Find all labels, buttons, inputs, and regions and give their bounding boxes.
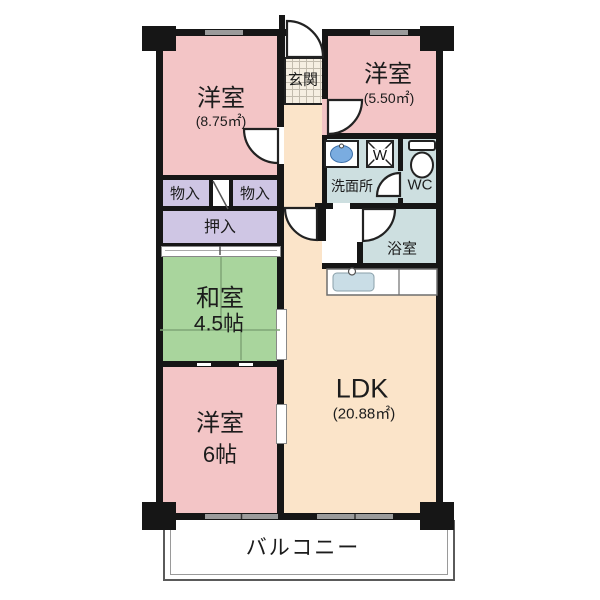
- japanese-room-area: 4.5帖: [194, 314, 244, 335]
- bedroom-sw-label: 洋室: [196, 412, 244, 436]
- entrance-door-arc: [287, 21, 323, 57]
- pillar-top-right: [420, 26, 454, 51]
- pillar-top-left: [142, 26, 176, 51]
- door-arcs: [244, 21, 400, 241]
- ldk-label: LDK: [336, 376, 389, 403]
- bedroom-ne-label: 洋室: [364, 63, 412, 87]
- pillar-bottom-right: [420, 502, 454, 530]
- bedroom-nw-area: (8.75㎡): [196, 114, 247, 128]
- ldk-area: (20.88㎡): [333, 407, 396, 422]
- storage-right-label: 物入: [240, 187, 270, 202]
- storage-gap-diagonal: [213, 181, 228, 209]
- bedroom-nw-door-arc: [244, 129, 278, 163]
- washer-icon: W: [367, 141, 393, 167]
- kitchen-sink: [333, 273, 374, 291]
- bathroom-door-arc: [363, 209, 395, 241]
- entrance-label: 玄関: [288, 73, 318, 88]
- bedroom-nw-label: 洋室: [197, 87, 245, 111]
- bedroom-ne-door-arc: [328, 100, 362, 134]
- washroom-label: 洗面所: [331, 179, 373, 193]
- closet-label: 押入: [204, 220, 236, 236]
- kitchen-faucet: [349, 268, 356, 275]
- bathroom-label: 浴室: [387, 242, 417, 257]
- wc-label: WC: [408, 178, 433, 193]
- hall-door-arc: [285, 208, 317, 240]
- bedroom-sw-area: 6帖: [203, 444, 237, 466]
- wc-door-arc: [377, 173, 400, 196]
- floorplan: W 洋室 (8.75㎡) 洋室 (5.50㎡) 玄関 洗面所 WC 浴室 物入 …: [0, 0, 600, 600]
- bedroom-ne-area: (5.50㎡): [364, 91, 415, 105]
- sink-icon: [325, 141, 358, 167]
- japanese-room-label: 和室: [196, 287, 244, 311]
- kitchen-counter: [327, 268, 437, 295]
- toilet-icon: [409, 141, 435, 178]
- storage-left-label: 物入: [170, 187, 200, 202]
- washer-label: W: [373, 147, 388, 164]
- plan-details: W: [0, 0, 600, 600]
- balcony-label: バルコニー: [246, 538, 361, 559]
- pillar-bottom-left: [142, 502, 176, 530]
